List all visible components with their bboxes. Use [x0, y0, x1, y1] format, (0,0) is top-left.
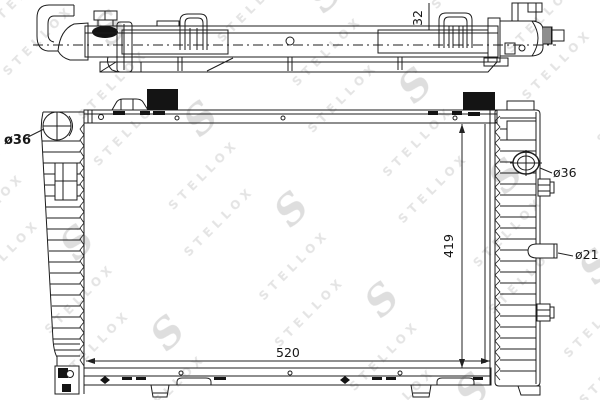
label-diameter-36-right: ø36	[553, 165, 577, 180]
label-diameter-36-left: ø36	[4, 133, 31, 148]
watermark-layer	[0, 0, 600, 400]
filler-cap-seal	[92, 26, 118, 38]
radiator-technical-drawing-page: STELLOX S STELLOX	[0, 0, 600, 400]
label-diameter-21: ø21	[575, 247, 599, 262]
mounting-bracket-top-left	[147, 89, 178, 110]
radiator-technical-drawing: STELLOX S STELLOX	[0, 0, 600, 400]
dim-520-label: 520	[276, 345, 300, 360]
side-fitting-lower	[537, 304, 550, 321]
drain-pipe	[528, 244, 557, 258]
mounting-bracket-top-right	[463, 92, 495, 110]
dim-419-label: 419	[441, 234, 456, 258]
side-fitting-upper	[538, 179, 550, 196]
dim-32-label: 32	[410, 10, 425, 26]
